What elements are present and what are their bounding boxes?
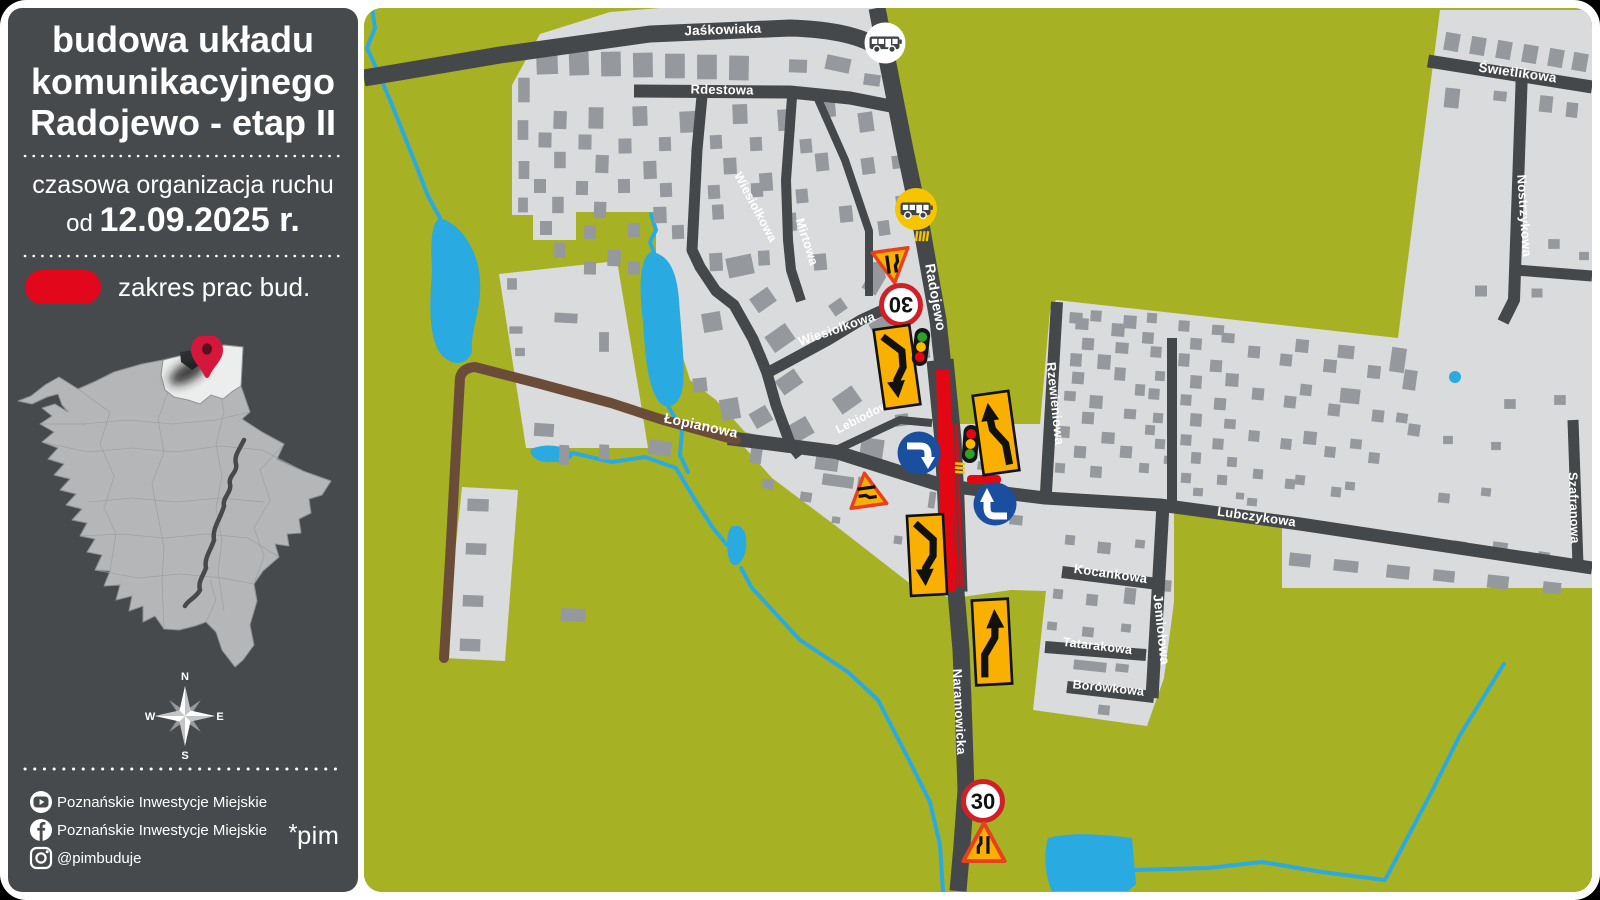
- svg-text:N: N: [181, 671, 189, 683]
- svg-text:Rdestowa: Rdestowa: [690, 81, 754, 97]
- svg-text:Szafranowa: Szafranowa: [1566, 472, 1583, 545]
- svg-text:S: S: [181, 750, 188, 762]
- svg-text:pim: pim: [297, 822, 339, 850]
- svg-text:Jaśkowiaka: Jaśkowiaka: [684, 21, 762, 39]
- svg-text:W: W: [145, 711, 156, 723]
- svg-text:E: E: [216, 711, 223, 723]
- svg-text:*: *: [288, 820, 297, 846]
